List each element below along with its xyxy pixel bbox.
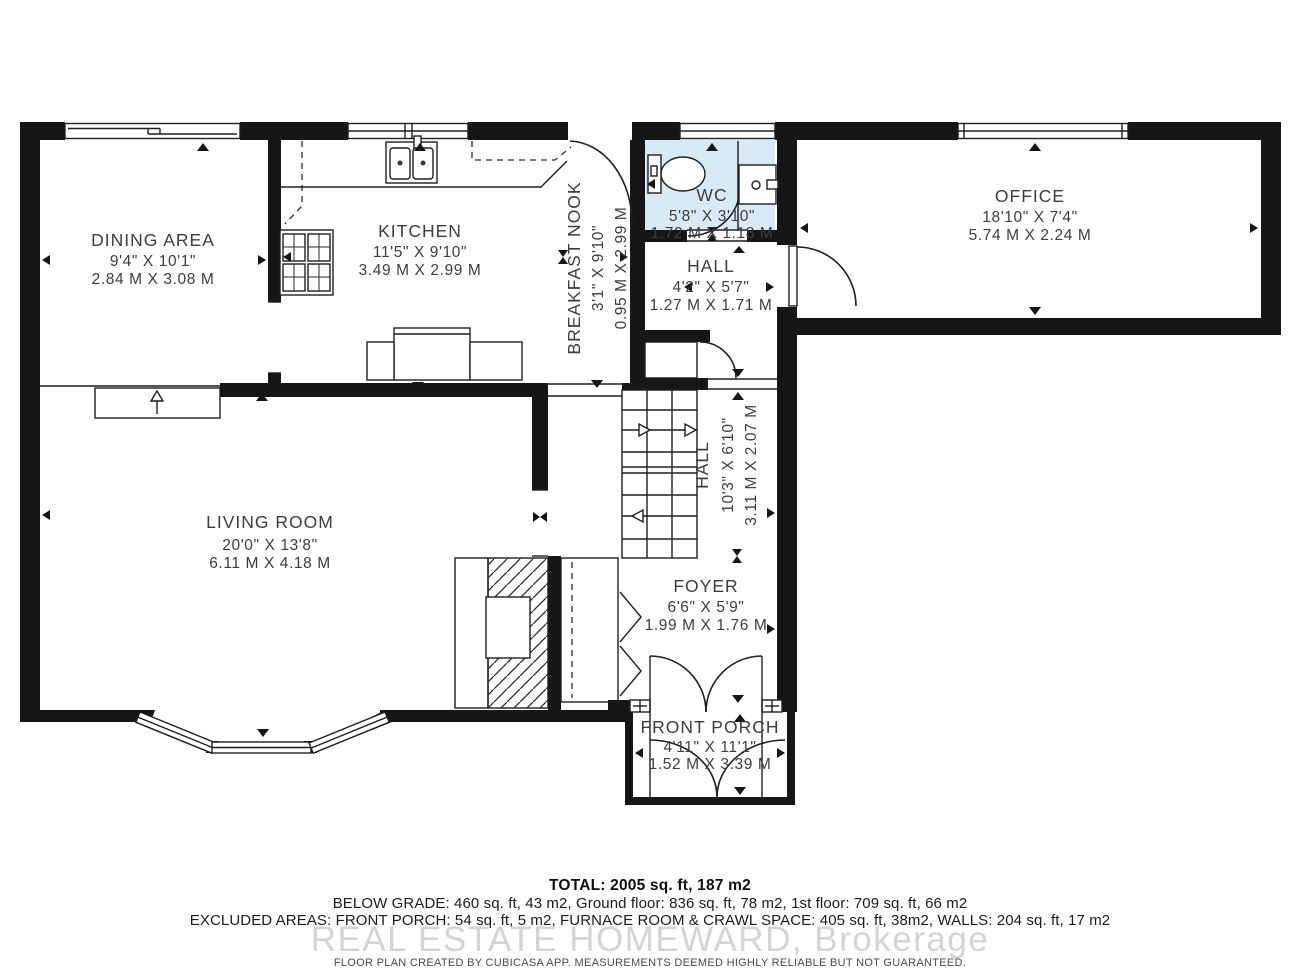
marker-down [732, 695, 744, 703]
wall [1128, 122, 1281, 140]
marker-down [732, 369, 744, 377]
wall [380, 710, 632, 722]
wall [20, 710, 140, 722]
wall [630, 140, 645, 390]
room-label-living-room: LIVING ROOM 20'0" X 13'8" 6.11 M X 4.18 … [206, 512, 334, 572]
closet-outline [645, 342, 697, 378]
floor-plan-page: DINING AREA 9'4" X 10'1" 2.84 M X 3.08 M… [0, 0, 1300, 975]
kitchen-cabinet [470, 342, 522, 380]
marker-bowtie [732, 556, 742, 563]
wall [625, 712, 633, 805]
room-name: OFFICE [995, 186, 1065, 206]
room-label-hall-lower: HALL 10'3" X 6'10" 3.11 M X 2.07 M [692, 404, 760, 526]
marker-right [766, 282, 774, 292]
wall [240, 122, 348, 140]
marker-left [635, 748, 643, 758]
office-door-arc [797, 247, 856, 306]
wall [777, 140, 797, 245]
room-name: DINING AREA [91, 230, 215, 250]
wall [777, 318, 1281, 335]
marker-up [1029, 143, 1041, 151]
room-label-breakfast-nook: BREAKFAST NOOK 3'1" X 9'10" 0.95 M X 2.9… [564, 181, 630, 354]
marker-right [767, 508, 775, 518]
room-dim-metric: 5.74 M X 2.24 M [969, 227, 1092, 244]
marker-left [42, 510, 50, 520]
room-dim-metric: 0.95 M X 2.99 M [613, 207, 630, 330]
wall [20, 122, 40, 722]
fireplace [455, 558, 548, 708]
room-label-dining: DINING AREA 9'4" X 10'1" 2.84 M X 3.08 M [91, 230, 215, 288]
stove [280, 230, 333, 295]
room-name: WC [696, 185, 727, 205]
faucet-icon [767, 180, 778, 189]
total-area-text: TOTAL: 2005 sq. ft, 187 m2 [549, 877, 751, 894]
marker-up [197, 143, 209, 151]
marker-down [734, 787, 746, 795]
wall [220, 383, 545, 397]
marker-up [733, 246, 745, 253]
marker-bowtie [732, 549, 742, 556]
wall [775, 122, 958, 140]
marker-right [1250, 223, 1258, 233]
bifold-door [620, 592, 641, 696]
room-name: HALL [687, 256, 735, 276]
room-dim-metric: 1.72 M X 1.18 M [651, 225, 774, 242]
room-name: KITCHEN [378, 221, 462, 241]
upper-cabinet-outline [472, 141, 571, 160]
marker-bowtie [540, 512, 547, 522]
room-dim-imperial: 5'8" X 3'10" [669, 208, 755, 225]
summary-block: TOTAL: 2005 sq. ft, 187 m2 BELOW GRADE: … [190, 877, 1110, 969]
wall [532, 383, 548, 490]
bathroom-sink [739, 165, 778, 204]
kitchen-cabinet [367, 342, 394, 380]
room-dim-imperial: 9'4" X 10'1" [110, 253, 196, 270]
bay-window-left-pane [138, 717, 214, 748]
kitchen-sink [386, 136, 437, 183]
entry-sidelight-right [762, 700, 782, 712]
marker-bowtie [533, 512, 540, 522]
room-label-hall-upper: HALL 4'2" X 5'7" 1.27 M X 1.71 M [650, 256, 773, 314]
room-dim-imperial: 6'6" X 5'9" [668, 599, 745, 616]
room-label-kitchen: KITCHEN 11'5" X 9'10" 3.49 M X 2.99 M [359, 221, 482, 279]
room-dim-imperial: 4'2" X 5'7" [673, 279, 750, 296]
wall [630, 330, 710, 342]
marker-right [767, 624, 775, 634]
wall [268, 140, 281, 302]
wall [787, 712, 795, 805]
brokerage-watermark: REAL ESTATE HOMEWARD, Brokerage [311, 920, 990, 959]
room-name: FOYER [673, 576, 738, 596]
room-dim-metric: 1.99 M X 1.76 M [645, 617, 768, 634]
room-dim-imperial: 4'11" X 11'1" [663, 739, 756, 756]
room-dim-metric: 3.11 M X 2.07 M [743, 404, 760, 526]
room-label-foyer: FOYER 6'6" X 5'9" 1.99 M X 1.76 M [645, 576, 768, 634]
closet-door-arc [700, 342, 736, 378]
fridge [394, 328, 470, 380]
step-arrow-head [151, 391, 163, 401]
marker-right [777, 748, 785, 758]
stair-outline [622, 390, 697, 558]
room-dim-metric: 1.52 M X 3.39 M [649, 756, 772, 773]
room-dim-imperial: 10'3" X 6'10" [720, 417, 737, 512]
room-name: LIVING ROOM [206, 512, 334, 532]
wall [782, 700, 797, 712]
room-dim-metric: 3.49 M X 2.99 M [359, 262, 482, 279]
room-name: FRONT PORCH [640, 717, 779, 737]
floor-areas-text: BELOW GRADE: 460 sq. ft, 43 m2, Ground f… [333, 895, 968, 912]
wardrobe-closet [561, 558, 618, 702]
room-dim-imperial: 3'1" X 9'10" [590, 225, 607, 311]
marker-down [1029, 307, 1041, 315]
room-label-office: OFFICE 18'10" X 7'4" 5.74 M X 2.24 M [969, 186, 1092, 244]
room-labels: DINING AREA 9'4" X 10'1" 2.84 M X 3.08 M… [91, 181, 1091, 773]
room-dim-metric: 6.11 M X 4.18 M [209, 555, 331, 572]
wall [632, 122, 680, 140]
office-door-leaf [789, 246, 797, 306]
marker-right [258, 255, 266, 265]
dining-window [65, 124, 240, 139]
wall [1261, 140, 1281, 335]
room-dim-imperial: 20'0" X 13'8" [222, 537, 317, 554]
floor-step [95, 388, 220, 418]
upper-cabinet-outline [285, 141, 302, 224]
room-dim-imperial: 18'10" X 7'4" [982, 209, 1077, 226]
room-name: BREAKFAST NOOK [564, 181, 584, 354]
staircase [622, 390, 697, 558]
marker-left [800, 223, 808, 233]
floor-plan-drawing: DINING AREA 9'4" X 10'1" 2.84 M X 3.08 M… [0, 0, 1300, 975]
windows [65, 124, 1128, 754]
wall [625, 797, 795, 805]
room-name: HALL [692, 441, 712, 489]
marker-down [257, 729, 269, 737]
entry-door-arc [706, 656, 762, 712]
wall [777, 307, 797, 710]
entry-sidelight-left [630, 700, 650, 712]
room-dim-metric: 2.84 M X 3.08 M [92, 271, 215, 288]
marker-up [732, 392, 744, 400]
entry-door-arc [650, 656, 706, 712]
wall [468, 122, 568, 140]
room-dim-metric: 1.27 M X 1.71 M [650, 297, 773, 314]
bay-window-right-pane [311, 717, 387, 748]
room-dim-imperial: 11'5" X 9'10" [373, 244, 467, 261]
disclaimer-text: FLOOR PLAN CREATED BY CUBICASA APP. MEAS… [334, 957, 966, 969]
wall [548, 556, 561, 710]
marker-left [42, 255, 50, 265]
